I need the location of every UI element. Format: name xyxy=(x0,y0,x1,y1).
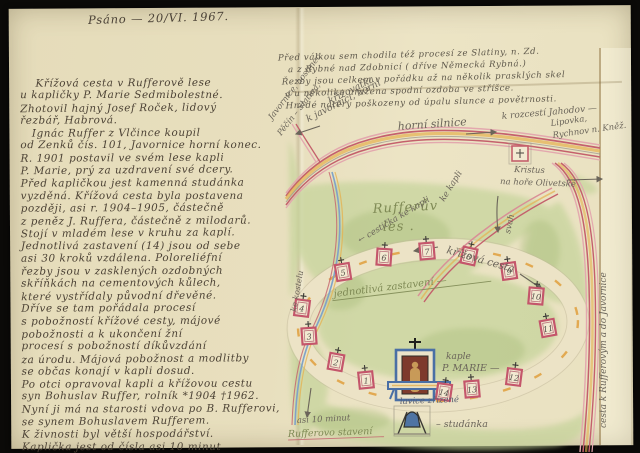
svg-text:12: 12 xyxy=(508,373,519,383)
svg-text:11: 11 xyxy=(542,324,554,335)
label-kaple-line2: P. MARIE — xyxy=(441,363,500,374)
label-kristus-line1: Kristus xyxy=(513,165,546,176)
svg-text:1: 1 xyxy=(363,376,369,385)
label-kaple-line1: kaple xyxy=(446,352,471,362)
olivet-shrine-icon xyxy=(509,143,531,164)
label-lavice: lavice zřízené xyxy=(400,394,459,407)
svg-text:13: 13 xyxy=(467,385,478,395)
hand-drawn-map: 1 2 3 4 5 6 7 8 xyxy=(0,0,640,453)
label-cesta-margin: cesta k Rufferovým a do Javornice xyxy=(598,272,609,428)
svg-text:6: 6 xyxy=(381,253,387,262)
label-studanka: – studánka xyxy=(436,419,488,430)
svg-text:3: 3 xyxy=(306,332,312,341)
label-kristus-line2: na hoře Olivetské xyxy=(500,176,576,190)
scanned-manuscript-photo: Psáno — 20/VI. 1967. Křížová cesta v Ruf… xyxy=(0,0,640,453)
crossing-stub-road xyxy=(292,124,320,162)
svg-text:10: 10 xyxy=(530,292,541,302)
